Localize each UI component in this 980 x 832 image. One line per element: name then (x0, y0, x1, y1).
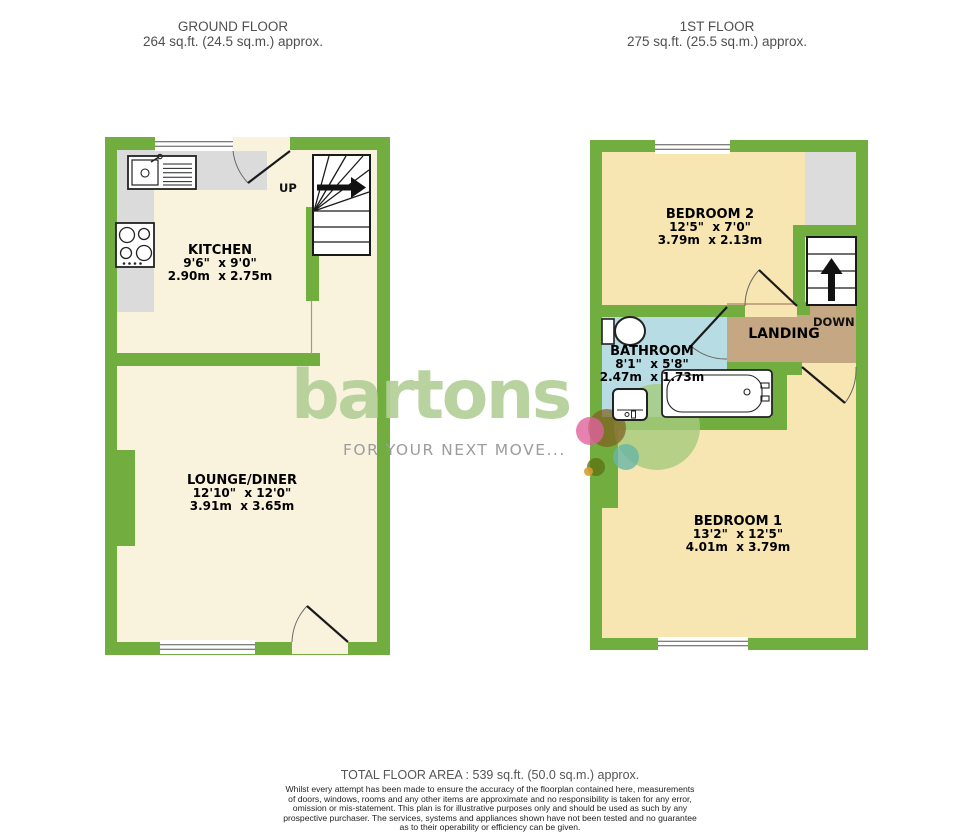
room-dims-metric: 2.90m x 2.75m (140, 270, 300, 283)
total-floor-area: TOTAL FLOOR AREA : 539 sq.ft. (50.0 sq.m… (0, 768, 980, 782)
disclaimer-line: as to their operability or efficiency ca… (0, 823, 980, 832)
room-dims-metric: 3.91m x 3.65m (162, 500, 322, 513)
window-kitchen-icon (155, 137, 233, 151)
floorplan-page: GROUND FLOOR 264 sq.ft. (24.5 sq.m.) app… (0, 0, 980, 832)
window-bedroom1-icon (658, 637, 748, 650)
staircase-first (807, 237, 856, 305)
kitchen-sink-icon (128, 154, 196, 189)
bedroom1-label: BEDROOM 1 13'2" x 12'5" 4.01m x 3.79m (658, 515, 818, 554)
plan-linework (0, 0, 980, 832)
down-label: DOWN (813, 315, 855, 329)
room-dims-metric: 3.79m x 2.13m (630, 234, 790, 247)
up-label: UP (279, 181, 297, 195)
door-bedroom1-icon (802, 367, 856, 403)
door-front-icon (233, 137, 290, 183)
staircase-ground (313, 155, 370, 255)
bathroom-label: BATHROOM 8'1" x 5'8" 2.47m x 1.73m (572, 345, 732, 384)
window-lounge-icon (160, 640, 255, 654)
window-bedroom2-icon (655, 140, 730, 154)
bedroom2-label: BEDROOM 2 12'5" x 7'0" 3.79m x 2.13m (630, 208, 790, 247)
kitchen-label: KITCHEN 9'6" x 9'0" 2.90m x 2.75m (140, 244, 300, 283)
door-back-icon (292, 606, 348, 654)
toilet-icon (602, 317, 645, 345)
room-dims-metric: 4.01m x 3.79m (658, 541, 818, 554)
disclaimer: Whilst every attempt has been made to en… (0, 785, 980, 832)
basin-icon (613, 389, 647, 420)
door-bedroom2-icon (745, 270, 797, 317)
room-dims-metric: 2.47m x 1.73m (572, 371, 732, 384)
lounge-label: LOUNGE/DINER 12'10" x 12'0" 3.91m x 3.65… (162, 474, 322, 513)
